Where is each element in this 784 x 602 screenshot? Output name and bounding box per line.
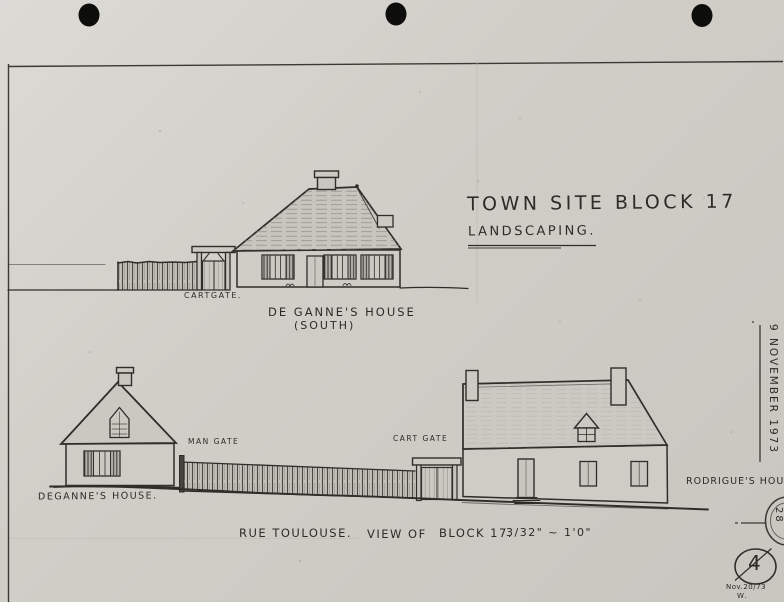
top-house-chimney xyxy=(315,171,339,190)
man-gate-label: MAN GATE xyxy=(188,438,239,446)
title-underline xyxy=(468,246,596,249)
border-lines xyxy=(8,62,783,602)
top-house-window xyxy=(324,255,356,279)
left-house xyxy=(54,368,186,489)
punch-hole xyxy=(79,4,100,27)
street-caption: RUE TOULOUSE. xyxy=(239,528,352,540)
top-elevation-drawing xyxy=(8,171,468,290)
top-cart-gate xyxy=(192,247,235,291)
street-cart-gate-label: CART GATE xyxy=(393,435,448,443)
top-house xyxy=(233,171,401,287)
view-caption: VIEW OF xyxy=(367,529,427,541)
roof-dormer-box xyxy=(378,216,394,228)
punch-hole xyxy=(386,3,407,26)
date-note-vertical: 9 NOVEMBER 1973 xyxy=(768,324,779,454)
scale-caption: 3/32" ~ 1'0" xyxy=(506,527,592,538)
top-fence xyxy=(118,262,197,291)
top-house-window xyxy=(361,255,393,279)
right-house-chimney xyxy=(611,368,626,405)
top-elevation-caption: DE GANNE'S HOUSE xyxy=(268,307,416,319)
detail-marker-text: 28 xyxy=(773,507,783,524)
revision-initials: W. xyxy=(737,593,748,600)
sheet-subtitle: LANDSCAPING. xyxy=(468,225,596,239)
right-house-label: RODRIGUE'S HOUS xyxy=(686,477,784,487)
drawing-linework xyxy=(0,0,784,602)
punch-hole xyxy=(692,4,713,27)
right-house-window xyxy=(631,462,648,487)
street-elevation-drawing xyxy=(50,368,708,510)
block-caption: BLOCK 17. xyxy=(439,528,513,540)
man-gate-post xyxy=(180,456,185,493)
sheet-title: TOWN SITE BLOCK 17 xyxy=(467,193,737,215)
top-cart-gate-label: CARTGATE. xyxy=(184,292,242,300)
punch-holes xyxy=(79,3,713,28)
drawing-sheet: TOWN SITE BLOCK 17 LANDSCAPING. CARTGATE… xyxy=(0,0,784,602)
right-house-window xyxy=(580,462,597,487)
revision-date: Nov.20/73 xyxy=(726,584,766,591)
left-house-chimney xyxy=(117,368,134,386)
top-house-door xyxy=(307,256,323,287)
street-cart-gate xyxy=(413,458,462,501)
stray-dot xyxy=(752,321,754,323)
left-house-window xyxy=(84,451,120,476)
top-house-window xyxy=(262,255,294,279)
left-house-label: DEGANNE'S HOUSE. xyxy=(38,491,158,502)
right-house-chimney xyxy=(466,371,478,401)
top-elevation-caption-sub: (SOUTH) xyxy=(294,320,355,331)
sheet-number: 4 xyxy=(748,553,762,573)
right-house xyxy=(463,368,668,504)
